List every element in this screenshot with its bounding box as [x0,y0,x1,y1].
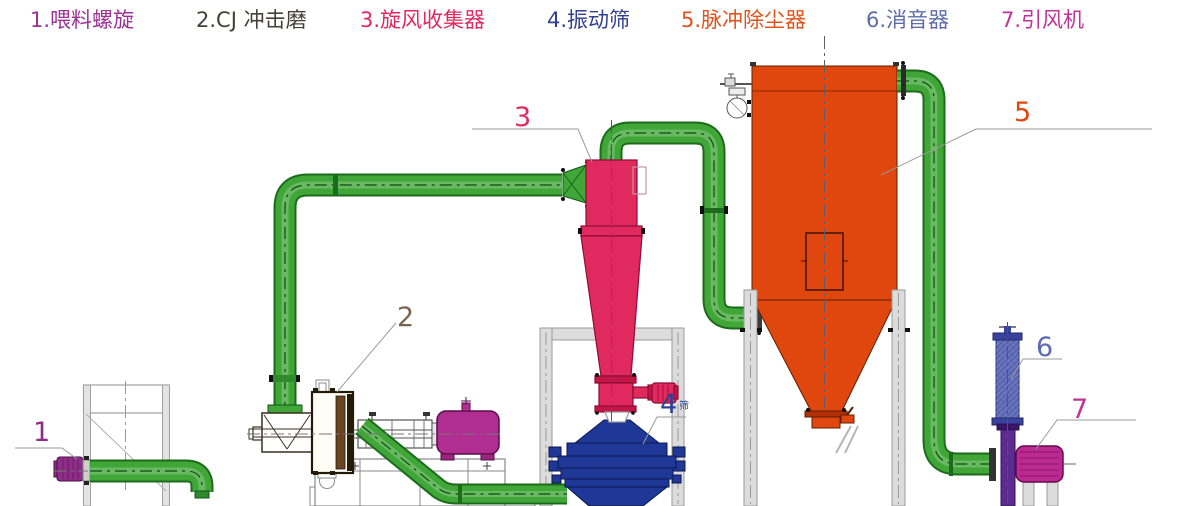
callout-7: 7 [1071,394,1088,425]
discharge-valve-handle [847,407,853,415]
induced-draft-fan [1016,446,1076,506]
callout-4-suffix: 筛 [679,399,689,412]
callout-3: 3 [514,102,531,133]
legend-item-impact-mill: 2.CJ 冲击磨 [196,8,307,32]
cyclone-collector [578,160,678,422]
process-flow-diagram: 1.喂料螺旋 2.CJ 冲击磨 3.旋风收集器 4.振动筛 5.脉冲除尘器 6.… [0,0,1189,506]
vibrating-screen [549,420,685,506]
legend-item-feed-screw: 1.喂料螺旋 [30,8,134,32]
callout-4: 4 [660,389,677,420]
feed-hopper-frame [84,381,170,506]
pulse-dust-collector [720,62,910,506]
legend-item-vib-screen: 4.振动筛 [547,8,630,32]
callout-2: 2 [397,302,414,333]
pipe-dust-collector-to-fan [897,61,996,481]
legend-item-muffler: 6.消音器 [866,8,949,32]
legend-item-cyclone: 3.旋风收集器 [360,8,485,32]
callout-5: 5 [1014,97,1031,128]
diagram-canvas: 1.喂料螺旋 2.CJ 冲击磨 3.旋风收集器 4.振动筛 5.脉冲除尘器 6.… [0,0,1189,506]
legend-item-dust-collector: 5.脉冲除尘器 [681,8,806,32]
callout-6: 6 [1036,332,1053,363]
mill-motor [437,397,499,460]
cyclone-inlet-cone [561,160,589,208]
pulse-valve-assembly [720,74,752,118]
legend-item-fan: 7.引风机 [1001,8,1084,32]
callout-1: 1 [33,417,50,448]
legend: 1.喂料螺旋 2.CJ 冲击磨 3.旋风收集器 4.振动筛 5.脉冲除尘器 6.… [30,8,1084,32]
